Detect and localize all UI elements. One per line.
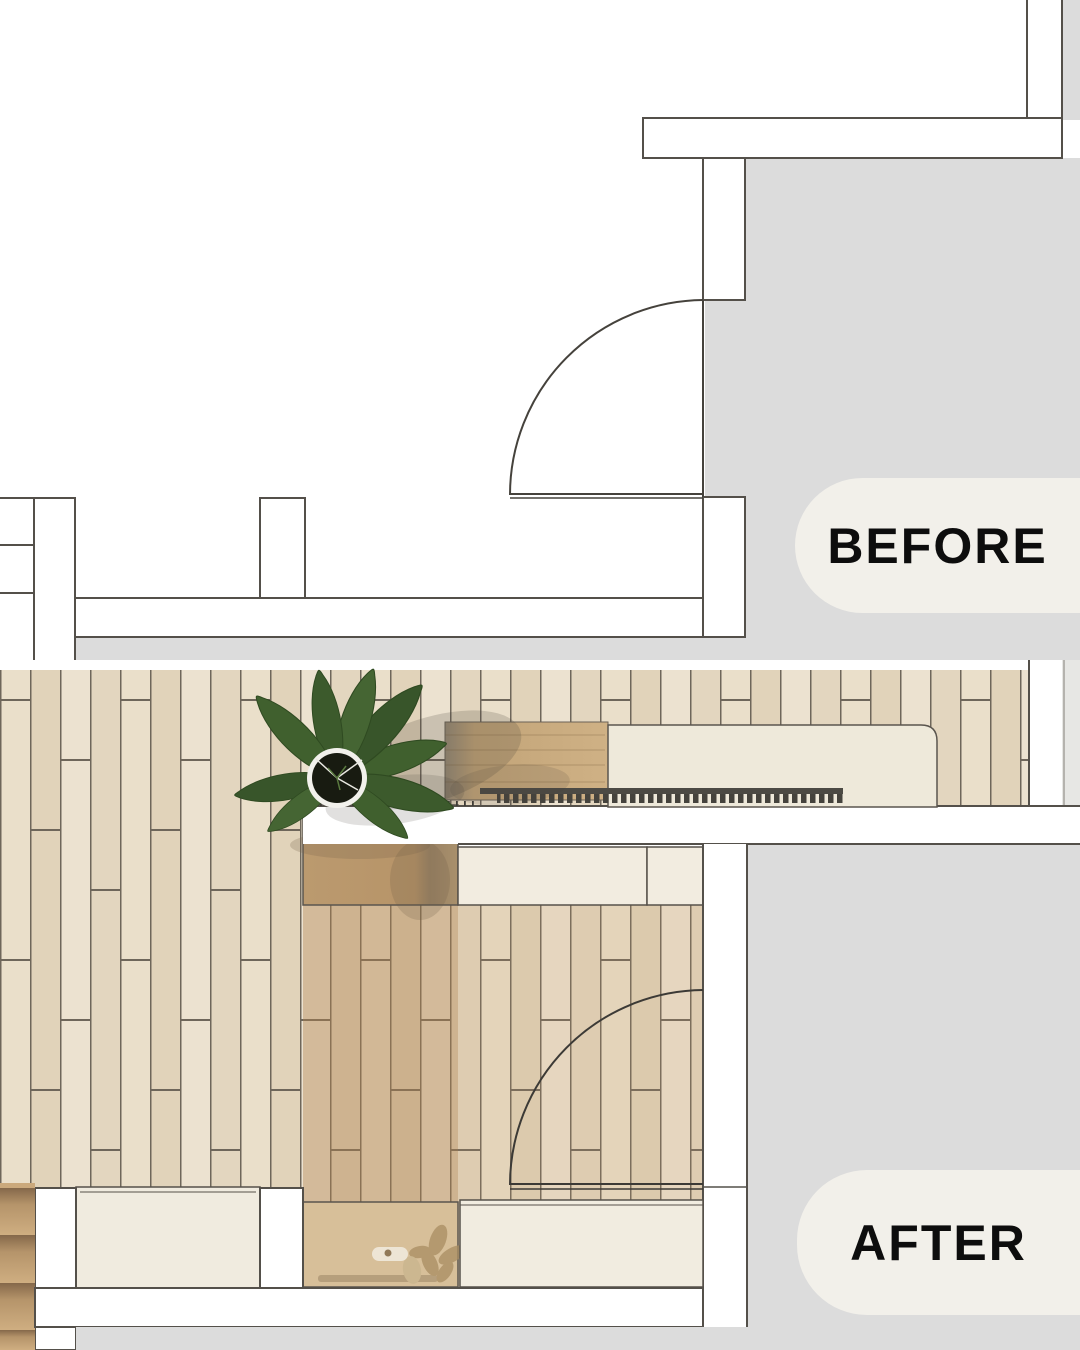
gray-area-door-opening — [705, 300, 745, 497]
wall-fill — [703, 844, 747, 1327]
built-in-cabinet — [647, 847, 703, 905]
before-label-pill: BEFORE — [795, 478, 1080, 613]
wardrobe-wood-smudge — [390, 840, 450, 920]
niche-cabinet — [76, 1187, 260, 1295]
tall-wardrobe — [290, 805, 468, 1287]
cabinet-top — [76, 1187, 260, 1295]
stair-steps — [0, 498, 34, 660]
before-after-comparison-graphic: BEFORE AFTER — [0, 0, 1080, 1350]
wardrobe-body-tint — [303, 905, 458, 1202]
stair-step — [0, 1330, 35, 1350]
stair-step — [0, 1283, 35, 1330]
top-right-vertical-wall — [1029, 660, 1062, 806]
storage-bench — [460, 1200, 703, 1287]
column-pillar — [260, 498, 305, 598]
gray-area-top-right — [1062, 0, 1080, 120]
stair-step — [0, 593, 34, 660]
column-pillar — [260, 1188, 303, 1288]
door-head-wall — [703, 158, 745, 300]
stair-step — [0, 1188, 35, 1235]
floor-left-area — [0, 806, 303, 1188]
after-label-pill: AFTER — [797, 1170, 1080, 1315]
gray-strip-bottom — [76, 1327, 747, 1350]
door-side-wall — [703, 844, 747, 1327]
built-in-cabinet — [458, 847, 647, 905]
top-right-vertical-wall — [1027, 0, 1062, 120]
stair-step — [0, 498, 34, 545]
stair-step — [0, 545, 34, 593]
left-wall-band — [34, 498, 75, 660]
bottom-wall — [35, 1288, 703, 1327]
built-in-cabinets — [458, 847, 703, 905]
after-label: AFTER — [850, 1214, 1027, 1272]
bottom-wall — [34, 598, 703, 637]
stair-steps — [0, 1183, 35, 1350]
gray-strip-bottom — [75, 638, 1080, 660]
door-side-wall — [703, 497, 745, 637]
stair-step — [0, 1235, 35, 1283]
before-label: BEFORE — [827, 517, 1047, 575]
top-wall — [643, 118, 1062, 158]
bench-top — [460, 1200, 703, 1287]
